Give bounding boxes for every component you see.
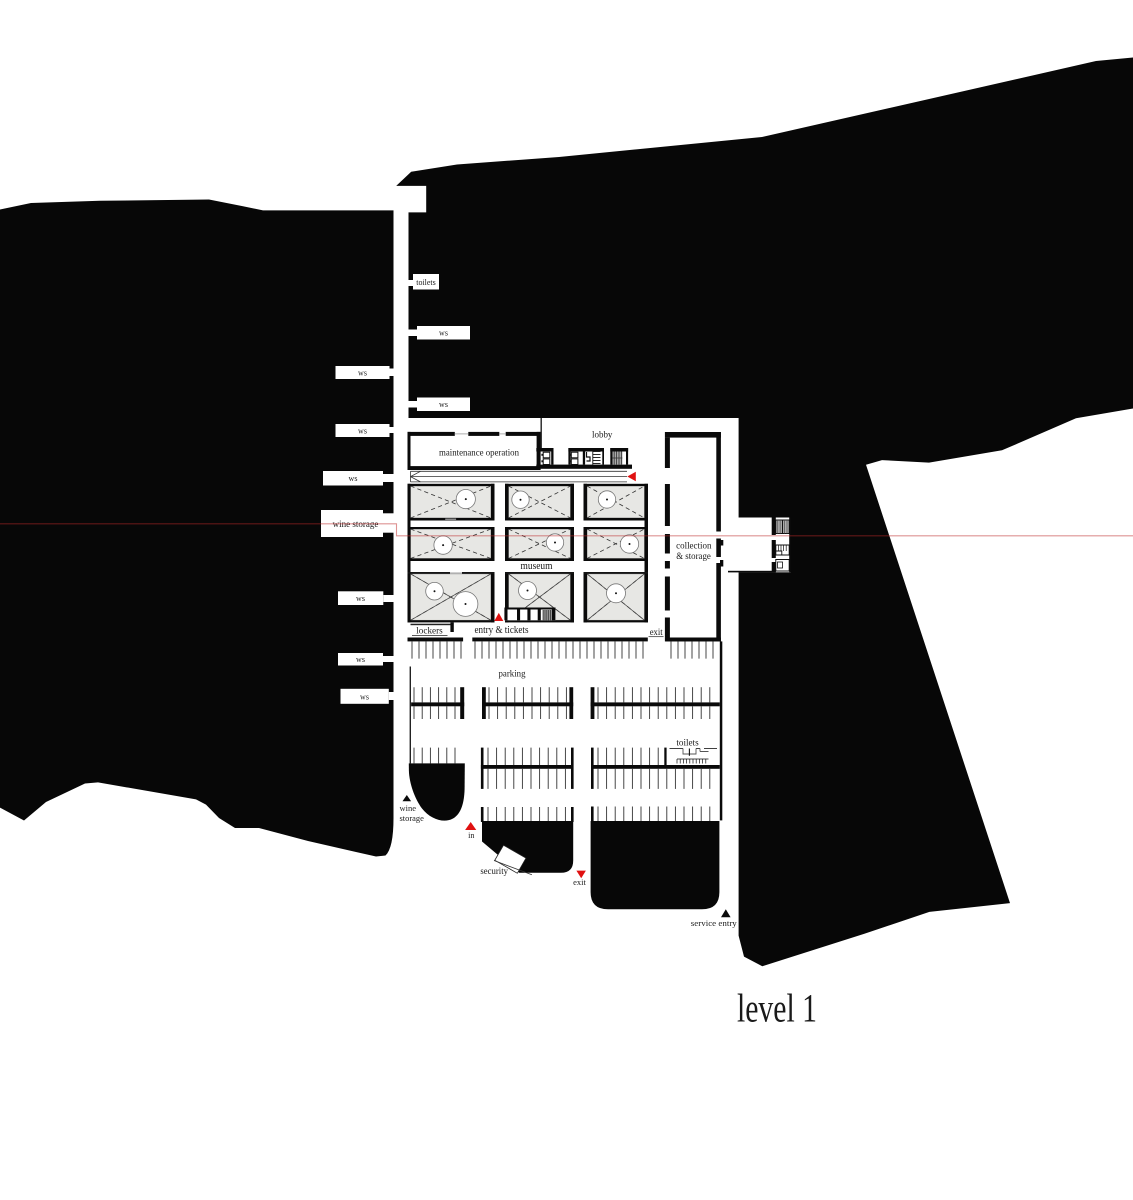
svg-text:storage: storage [400, 813, 425, 823]
svg-text:toilets: toilets [416, 278, 436, 287]
svg-text:entry & tickets: entry & tickets [475, 625, 529, 636]
svg-text:collection: collection [676, 541, 712, 551]
svg-text:museum: museum [521, 561, 553, 572]
svg-text:& storage: & storage [676, 551, 711, 561]
svg-text:lobby: lobby [592, 430, 613, 440]
svg-text:ws: ws [439, 400, 448, 409]
svg-text:level 1: level 1 [737, 986, 817, 1031]
svg-text:lockers: lockers [416, 627, 443, 637]
svg-text:maintenance operation: maintenance operation [439, 448, 519, 458]
svg-text:ws: ws [439, 329, 448, 338]
svg-text:wine: wine [400, 803, 417, 813]
svg-text:service entry: service entry [691, 918, 738, 928]
svg-text:toilets: toilets [676, 738, 699, 748]
svg-text:security: security [480, 867, 508, 877]
svg-text:exit: exit [573, 877, 586, 887]
svg-text:in: in [468, 830, 475, 840]
svg-text:wine storage: wine storage [333, 520, 379, 530]
svg-text:ws: ws [358, 426, 367, 435]
svg-text:ws: ws [358, 368, 367, 377]
svg-text:ws: ws [356, 655, 365, 664]
svg-text:ws: ws [360, 692, 369, 701]
svg-text:parking: parking [499, 669, 526, 679]
svg-text:ws: ws [349, 474, 358, 483]
svg-text:ws: ws [356, 594, 365, 603]
